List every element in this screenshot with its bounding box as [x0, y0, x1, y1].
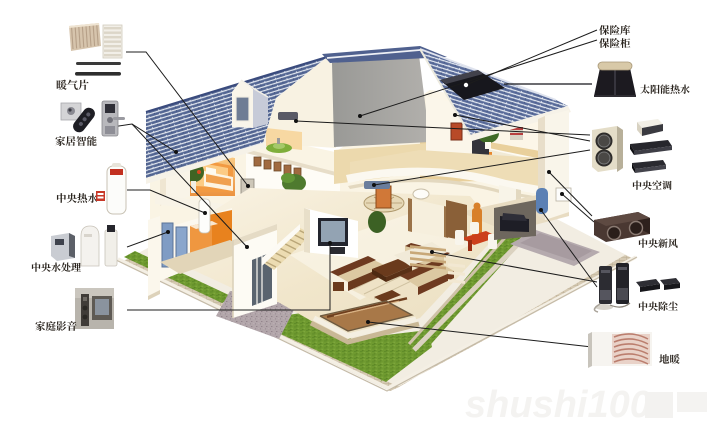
svg-text:shushi100: shushi100 [465, 384, 651, 426]
